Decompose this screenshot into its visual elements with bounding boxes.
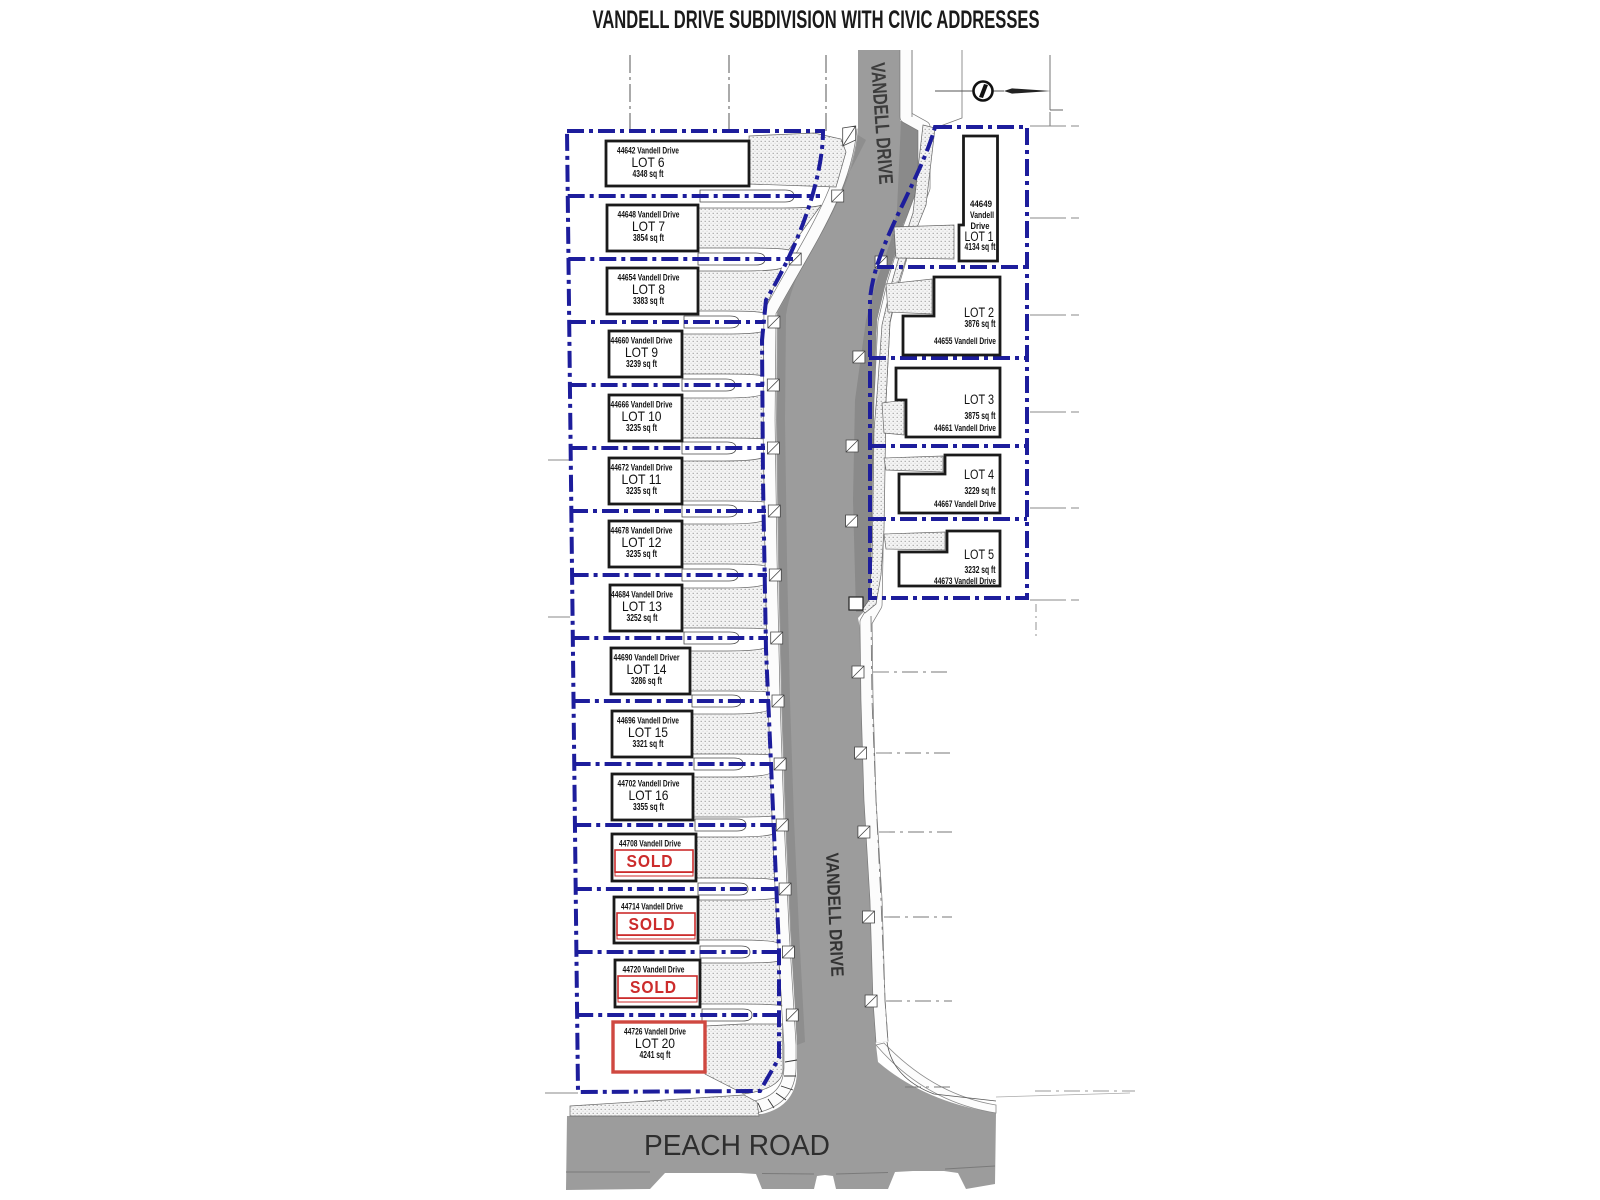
svg-text:3321 sq ft: 3321 sq ft — [633, 738, 664, 750]
svg-text:LOT 5: LOT 5 — [964, 547, 994, 562]
svg-text:VANDELL DRIVE SUBDIVISION WITH: VANDELL DRIVE SUBDIVISION WITH CIVIC ADD… — [593, 6, 1040, 34]
svg-text:SOLD: SOLD — [630, 977, 677, 997]
svg-text:PEACH ROAD: PEACH ROAD — [644, 1130, 830, 1162]
svg-text:Vandell: Vandell — [970, 210, 994, 221]
svg-text:3232 sq ft: 3232 sq ft — [965, 564, 996, 576]
svg-text:4241 sq ft: 4241 sq ft — [640, 1049, 671, 1061]
svg-text:4348 sq ft: 4348 sq ft — [633, 168, 664, 180]
svg-text:44708 Vandell Drive: 44708 Vandell Drive — [619, 839, 681, 850]
svg-text:44661 Vandell Drive: 44661 Vandell Drive — [934, 423, 996, 434]
svg-text:44714 Vandell Drive: 44714 Vandell Drive — [621, 902, 683, 913]
svg-text:3355 sq ft: 3355 sq ft — [633, 801, 664, 813]
svg-text:44649: 44649 — [970, 199, 992, 210]
svg-text:SOLD: SOLD — [629, 914, 676, 934]
svg-text:3876 sq ft: 3876 sq ft — [965, 318, 996, 330]
svg-text:3854 sq ft: 3854 sq ft — [633, 232, 664, 244]
svg-text:44720 Vandell Drive: 44720 Vandell Drive — [623, 965, 685, 976]
svg-text:3229 sq ft: 3229 sq ft — [965, 485, 996, 497]
svg-text:3235 sq ft: 3235 sq ft — [626, 485, 657, 497]
svg-text:3286 sq ft: 3286 sq ft — [631, 675, 662, 687]
svg-text:3235 sq ft: 3235 sq ft — [626, 548, 657, 560]
svg-text:4134 sq ft: 4134 sq ft — [965, 241, 996, 253]
svg-text:SOLD: SOLD — [627, 851, 674, 871]
svg-text:44667 Vandell Drive: 44667 Vandell Drive — [934, 499, 996, 510]
svg-text:3239 sq ft: 3239 sq ft — [626, 358, 657, 370]
svg-text:44655 Vandell Drive: 44655 Vandell Drive — [934, 336, 996, 347]
svg-text:LOT 3: LOT 3 — [964, 392, 994, 407]
svg-text:44673 Vandell Drive: 44673 Vandell Drive — [934, 576, 996, 587]
svg-text:LOT 4: LOT 4 — [964, 467, 994, 482]
svg-text:3383 sq ft: 3383 sq ft — [633, 295, 664, 307]
svg-text:3252 sq ft: 3252 sq ft — [627, 612, 658, 624]
svg-text:3235 sq ft: 3235 sq ft — [626, 422, 657, 434]
svg-text:3875 sq ft: 3875 sq ft — [965, 410, 996, 422]
